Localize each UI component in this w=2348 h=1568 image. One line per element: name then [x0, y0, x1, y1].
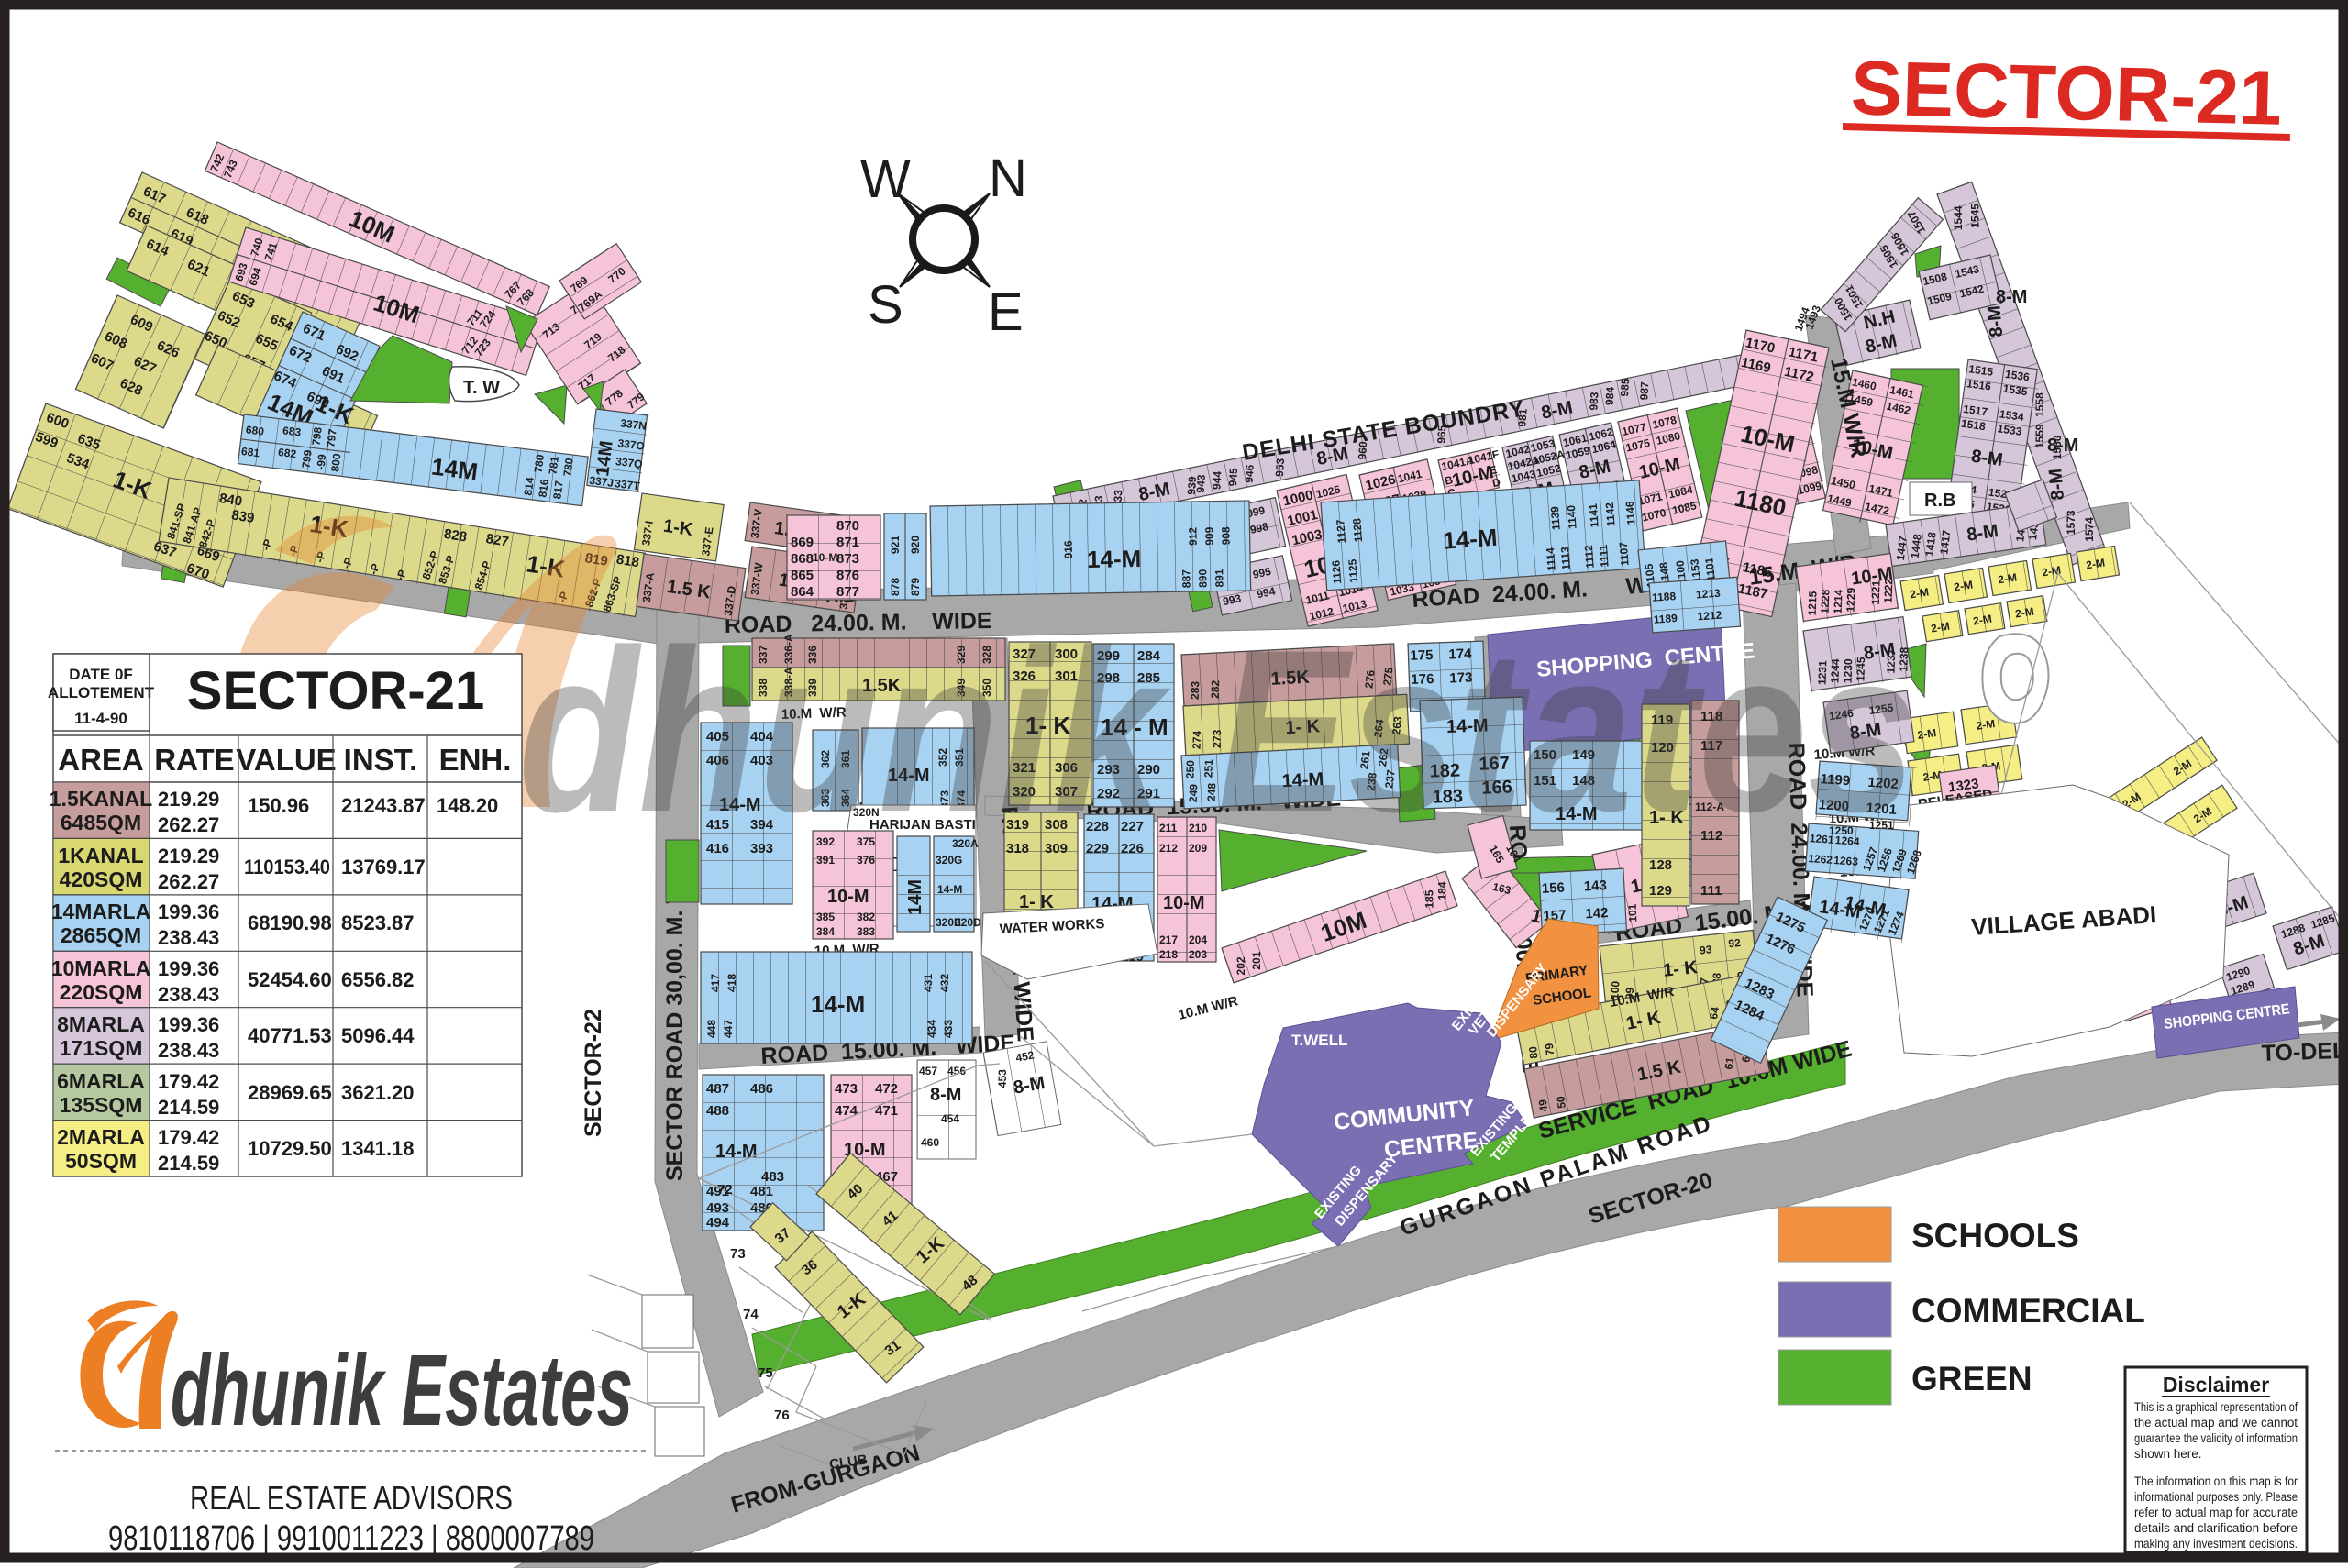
svg-text:817: 817 — [550, 480, 565, 500]
svg-text:8-M: 8-M — [930, 1085, 961, 1105]
svg-text:1142: 1142 — [1603, 502, 1618, 526]
svg-text:1221: 1221 — [1869, 580, 1883, 604]
svg-text:418: 418 — [725, 974, 738, 992]
svg-text:14M: 14M — [593, 439, 617, 477]
svg-text:1-K: 1-K — [662, 516, 695, 540]
svg-text:S: S — [868, 275, 903, 335]
svg-text:985: 985 — [1618, 378, 1632, 397]
svg-text:201: 201 — [1250, 951, 1263, 969]
svg-text:814: 814 — [522, 476, 537, 496]
svg-text:680: 680 — [245, 423, 265, 437]
svg-text:217: 217 — [1159, 933, 1178, 946]
svg-text:494: 494 — [706, 1215, 730, 1231]
svg-text:916: 916 — [1062, 540, 1075, 559]
svg-text:110153.40: 110153.40 — [244, 856, 330, 878]
svg-text:488: 488 — [706, 1103, 729, 1119]
svg-text:2MARLA: 2MARLA — [57, 1125, 145, 1149]
svg-text:943: 943 — [1194, 474, 1208, 493]
svg-text:1574: 1574 — [2083, 517, 2096, 542]
svg-text:220SQM: 220SQM — [60, 980, 143, 1004]
svg-text:214.59: 214.59 — [158, 1152, 219, 1175]
svg-text:Disclaimer: Disclaimer — [2163, 1373, 2269, 1397]
svg-text:199.36: 199.36 — [158, 957, 219, 980]
svg-text:1141: 1141 — [1587, 502, 1601, 527]
svg-text:486: 486 — [750, 1081, 773, 1097]
svg-text:179.42: 179.42 — [158, 1070, 219, 1093]
svg-text:432: 432 — [938, 974, 951, 992]
svg-text:2-M: 2-M — [1917, 726, 1937, 742]
svg-text:798: 798 — [310, 426, 325, 447]
svg-text:420SQM: 420SQM — [60, 867, 143, 891]
svg-text:RATE: RATE — [154, 743, 234, 777]
svg-text:72: 72 — [717, 1182, 733, 1198]
svg-text:871: 871 — [836, 535, 859, 550]
svg-text:682: 682 — [277, 446, 297, 460]
svg-text:457: 457 — [919, 1065, 937, 1077]
svg-text:179.42: 179.42 — [158, 1126, 219, 1149]
svg-text:52454.60: 52454.60 — [248, 968, 332, 991]
svg-text:REAL ESTATE ADVISORS: REAL ESTATE ADVISORS — [190, 1479, 513, 1517]
svg-text:150.96: 150.96 — [248, 794, 309, 817]
svg-text:780: 780 — [560, 457, 575, 477]
svg-text:472: 472 — [875, 1081, 898, 1097]
svg-text:1- K: 1- K — [1662, 957, 1699, 981]
svg-text:E: E — [988, 282, 1024, 342]
svg-text:453: 453 — [996, 1069, 1009, 1088]
svg-text:454: 454 — [941, 1112, 959, 1125]
svg-text:1573: 1573 — [2065, 510, 2077, 535]
svg-text:1128: 1128 — [1350, 517, 1365, 542]
svg-text:382: 382 — [857, 911, 875, 923]
svg-text:912: 912 — [1186, 527, 1199, 547]
svg-text:50SQM: 50SQM — [65, 1149, 137, 1173]
svg-text:the actual map and we cannot: the actual map and we cannot — [2134, 1416, 2298, 1430]
svg-text:481: 481 — [750, 1184, 773, 1199]
svg-text:14-M: 14-M — [1087, 545, 1142, 573]
svg-text:135SQM: 135SQM — [60, 1093, 143, 1117]
svg-text:1126: 1126 — [1329, 559, 1344, 584]
svg-text:156: 156 — [1541, 880, 1565, 897]
svg-text:1559: 1559 — [2033, 424, 2046, 448]
svg-text:1341.18: 1341.18 — [341, 1137, 415, 1160]
svg-text:983: 983 — [1587, 392, 1600, 411]
svg-text:9810118706 | 9910011223 | 8800: 9810118706 | 9910011223 | 8800007789 — [108, 1519, 594, 1558]
svg-text:143: 143 — [1583, 878, 1607, 894]
svg-text:868: 868 — [791, 551, 814, 567]
svg-text:781: 781 — [547, 455, 561, 475]
svg-text:93: 93 — [1699, 943, 1712, 956]
svg-text:14-M: 14-M — [811, 990, 865, 1018]
svg-text:1113: 1113 — [1558, 546, 1573, 570]
svg-text:448: 448 — [705, 1020, 718, 1038]
svg-text:434: 434 — [925, 1020, 938, 1038]
svg-text:111: 111 — [1700, 883, 1722, 899]
svg-text:COMMERCIAL: COMMERCIAL — [1911, 1292, 2145, 1330]
svg-text:73: 73 — [730, 1246, 746, 1262]
svg-text:VALUE: VALUE — [236, 743, 336, 777]
svg-text:10-M: 10-M — [1163, 893, 1205, 913]
svg-text:1114: 1114 — [1544, 547, 1558, 571]
svg-text:DATE 0F: DATE 0F — [69, 666, 133, 683]
svg-text:68190.98: 68190.98 — [248, 911, 332, 934]
svg-text:ALLOTEMENT: ALLOTEMENT — [48, 684, 155, 701]
svg-text:50: 50 — [1555, 1095, 1568, 1109]
svg-text:199.36: 199.36 — [158, 900, 219, 923]
svg-text:869: 869 — [791, 535, 814, 550]
svg-text:219.29: 219.29 — [158, 845, 219, 867]
svg-text:8-M: 8-M — [1984, 304, 2007, 337]
svg-text:433: 433 — [942, 1020, 955, 1038]
svg-text:878: 878 — [889, 578, 902, 596]
svg-text:385: 385 — [816, 911, 835, 923]
svg-text:6556.82: 6556.82 — [341, 968, 415, 991]
svg-text:887: 887 — [1180, 569, 1192, 589]
svg-text:shown here.: shown here. — [2134, 1447, 2202, 1461]
svg-text:2865QM: 2865QM — [61, 923, 141, 947]
svg-text:864: 864 — [791, 584, 814, 600]
svg-text:262.27: 262.27 — [158, 813, 219, 836]
svg-text:GREEN: GREEN — [1911, 1360, 2032, 1397]
svg-text:W: W — [860, 149, 911, 209]
svg-text:1222: 1222 — [1882, 578, 1896, 602]
svg-text:908: 908 — [1219, 526, 1232, 546]
svg-text:984: 984 — [1603, 386, 1617, 405]
svg-text:2-M: 2-M — [1976, 717, 1996, 733]
svg-text:1139: 1139 — [1548, 505, 1563, 530]
svg-text:199.36: 199.36 — [158, 1013, 219, 1036]
svg-text:SECTOR-21: SECTOR-21 — [187, 661, 484, 721]
svg-text:10MARLA: 10MARLA — [51, 956, 151, 980]
svg-text:11-4-90: 11-4-90 — [74, 710, 127, 727]
svg-text:185: 185 — [1423, 889, 1435, 908]
svg-text:8523.87: 8523.87 — [341, 911, 415, 934]
svg-text:details and clarification befo: details and clarification before — [2134, 1521, 2298, 1535]
svg-text:5096.44: 5096.44 — [341, 1024, 415, 1047]
svg-text:10729.50: 10729.50 — [248, 1137, 332, 1160]
svg-text:876: 876 — [836, 568, 859, 583]
svg-text:1112: 1112 — [1582, 545, 1597, 569]
svg-text:493: 493 — [706, 1200, 729, 1216]
svg-text:14M: 14M — [905, 879, 925, 915]
svg-text:SECTOR-22: SECTOR-22 — [581, 1009, 606, 1137]
svg-text:873: 873 — [836, 551, 859, 567]
svg-text:683: 683 — [282, 424, 302, 438]
svg-text:384: 384 — [816, 925, 835, 938]
svg-text:AREA: AREA — [58, 743, 144, 777]
svg-text:1.5KANAL: 1.5KANAL — [50, 787, 152, 811]
svg-text:142: 142 — [1585, 905, 1609, 922]
svg-text:10-M: 10-M — [827, 887, 869, 907]
svg-text:431: 431 — [922, 974, 935, 992]
svg-text:1KANAL: 1KANAL — [58, 844, 143, 867]
svg-text:890: 890 — [1196, 569, 1209, 588]
svg-text:238.43: 238.43 — [158, 1039, 219, 1062]
svg-text:909: 909 — [1202, 526, 1215, 546]
svg-text:79: 79 — [1543, 1043, 1556, 1056]
svg-text:14M: 14M — [430, 452, 480, 485]
svg-text:76: 76 — [774, 1408, 790, 1423]
svg-text:The information on this map is: The information on this map is for — [2134, 1474, 2298, 1488]
svg-text:1111: 1111 — [1597, 544, 1611, 568]
svg-text:681: 681 — [240, 445, 260, 459]
svg-text:dhunik Estates: dhunik Estates — [171, 1334, 633, 1447]
svg-text:80: 80 — [1526, 1045, 1540, 1059]
svg-text:T.WELL: T.WELL — [1291, 1032, 1347, 1049]
svg-text:3621.20: 3621.20 — [341, 1081, 415, 1104]
svg-text:R.B: R.B — [1924, 491, 1955, 511]
svg-text:202: 202 — [1235, 956, 1247, 975]
svg-text:214.59: 214.59 — [158, 1096, 219, 1119]
svg-text:refer to actual map for accura: refer to actual map for accurate — [2134, 1506, 2298, 1519]
svg-text:945: 945 — [1226, 468, 1240, 487]
svg-text:INST.: INST. — [344, 743, 418, 777]
svg-text:799: 799 — [299, 449, 314, 469]
svg-text:473: 473 — [835, 1081, 858, 1097]
svg-text:14-M: 14-M — [1442, 524, 1498, 555]
svg-text:879: 879 — [909, 578, 922, 596]
svg-text:184: 184 — [1435, 881, 1448, 900]
svg-text:1125: 1125 — [1346, 558, 1360, 583]
svg-text:14-M: 14-M — [715, 1142, 758, 1162]
svg-text:987: 987 — [1637, 381, 1651, 401]
svg-text:guarantee the validity of info: guarantee the validity of information — [2134, 1431, 2298, 1445]
svg-text:101: 101 — [1626, 903, 1640, 922]
svg-text:1127: 1127 — [1334, 519, 1348, 544]
svg-text:74: 74 — [743, 1307, 759, 1322]
svg-text:460: 460 — [921, 1136, 939, 1149]
svg-text:49: 49 — [1536, 1099, 1550, 1112]
svg-text:28969.65: 28969.65 — [248, 1081, 332, 1104]
svg-text:informational purposes only. P: informational purposes only. Please — [2134, 1490, 2298, 1504]
svg-text:483: 483 — [761, 1169, 784, 1185]
svg-text:921: 921 — [889, 536, 902, 554]
svg-text:171SQM: 171SQM — [60, 1036, 143, 1060]
svg-text:-99: -99 — [314, 453, 328, 470]
svg-text:92: 92 — [1728, 936, 1742, 950]
svg-text:218: 218 — [1159, 948, 1178, 961]
svg-text:1146: 1146 — [1623, 501, 1638, 525]
svg-text:SCHOOLS: SCHOOLS — [1911, 1217, 2079, 1254]
svg-text:40771.53: 40771.53 — [248, 1024, 332, 1047]
svg-text:10-M: 10-M — [813, 551, 837, 564]
svg-text:238.43: 238.43 — [158, 983, 219, 1006]
svg-text:making any investment decision: making any investment decisions. — [2134, 1537, 2298, 1551]
svg-text:8MARLA: 8MARLA — [57, 1012, 145, 1036]
svg-text:148.20: 148.20 — [437, 794, 498, 817]
svg-text:This is a graphical representa: This is a graphical representation of — [2134, 1400, 2298, 1414]
svg-text:8-M: 8-M — [2047, 436, 2078, 456]
svg-text:800: 800 — [328, 452, 343, 472]
svg-text:920: 920 — [909, 536, 922, 554]
svg-text:1544: 1544 — [1952, 205, 1965, 230]
svg-text:383: 383 — [857, 925, 875, 938]
svg-text:417: 417 — [709, 974, 722, 992]
svg-text:474: 474 — [835, 1103, 858, 1119]
svg-text:21243.87: 21243.87 — [341, 794, 426, 817]
svg-text:8-M: 8-M — [1996, 287, 2027, 307]
svg-text:13769.17: 13769.17 — [341, 856, 426, 878]
svg-text:238.43: 238.43 — [158, 926, 219, 949]
svg-text:ENH.: ENH. — [439, 743, 512, 777]
svg-text:487: 487 — [706, 1081, 729, 1097]
svg-text:6485QM: 6485QM — [61, 811, 141, 834]
svg-text:262.27: 262.27 — [158, 870, 219, 893]
svg-text:1213: 1213 — [1696, 587, 1722, 602]
svg-text:320D: 320D — [955, 916, 981, 929]
svg-text:204: 204 — [1189, 933, 1207, 946]
svg-text:780: 780 — [532, 454, 547, 474]
svg-text:816: 816 — [536, 478, 550, 498]
svg-text:797: 797 — [324, 428, 338, 448]
svg-text:1107: 1107 — [1617, 541, 1632, 566]
svg-text:877: 877 — [836, 584, 859, 600]
svg-text:891: 891 — [1213, 569, 1225, 588]
svg-text:219.29: 219.29 — [158, 788, 219, 811]
svg-text:203: 203 — [1189, 948, 1207, 961]
svg-text:1140: 1140 — [1565, 504, 1579, 529]
svg-text:N: N — [989, 149, 1027, 208]
svg-text:dhunik Estates: dhunik Estates — [518, 602, 1917, 860]
svg-text:14-M: 14-M — [937, 883, 962, 896]
svg-text:1545: 1545 — [1968, 204, 1981, 228]
svg-text:870: 870 — [836, 518, 859, 534]
svg-text:129: 129 — [1649, 883, 1672, 899]
svg-text:6MARLA: 6MARLA — [57, 1069, 145, 1093]
svg-text:946: 946 — [1243, 464, 1257, 483]
svg-text:75: 75 — [758, 1365, 773, 1381]
svg-text:61: 61 — [1722, 1056, 1736, 1071]
svg-text:944: 944 — [1210, 470, 1224, 490]
svg-text:447: 447 — [722, 1020, 735, 1038]
svg-text:64: 64 — [1707, 1006, 1722, 1021]
svg-text:T. W: T. W — [463, 378, 500, 398]
svg-text:14MARLA: 14MARLA — [51, 900, 151, 923]
svg-text:865: 865 — [791, 568, 814, 583]
